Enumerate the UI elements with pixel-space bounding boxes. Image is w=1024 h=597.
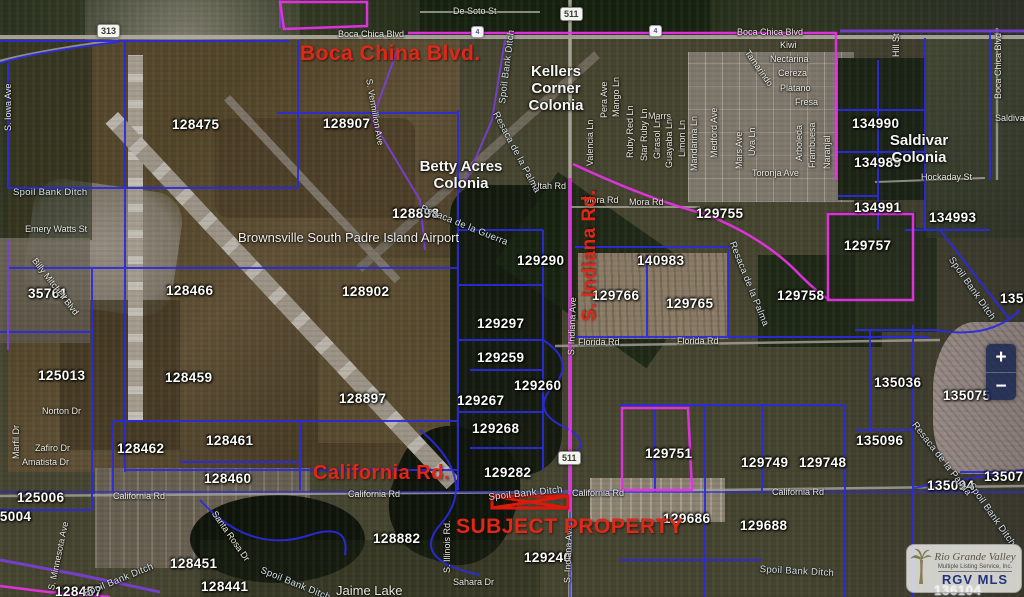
parcel-label: 140983 <box>637 253 684 268</box>
street-label: Emery Watts St <box>25 224 87 234</box>
parcel-label: 128441 <box>201 579 248 594</box>
street-label: Naranjal <box>822 135 832 169</box>
parcel-label: 134991 <box>854 200 901 215</box>
parcel-label: 129260 <box>514 378 561 393</box>
colonia-label: Betty Acres Colonia <box>420 159 503 193</box>
rgv-mls-logo: Rio Grande Valley Multiple Listing Servi… <box>906 544 1022 593</box>
road-highlight-label: Boca China Blvd. <box>300 42 481 66</box>
waterway-label: Spoil Bank Ditch <box>497 29 517 104</box>
parcel-label: 129758 <box>777 288 824 303</box>
parcel-label: 128459 <box>165 370 212 385</box>
colonia-label: Kellers Corner Colonia <box>529 64 584 114</box>
parcel-label: 129749 <box>741 455 788 470</box>
street-label: S. Illinois Rd. <box>442 520 452 573</box>
street-label: Ruby Red Ln <box>625 105 635 158</box>
parcel-label: 125013 <box>38 368 85 383</box>
street-label: Hockaday St <box>921 172 972 182</box>
parcel-label: 129751 <box>645 446 692 461</box>
street-label: Jaime Lake <box>336 583 402 597</box>
waterway-label: Resaca de la Palma <box>727 240 771 328</box>
road-highlight-label: California Rd. <box>313 462 450 485</box>
parcel-label: 129755 <box>696 206 743 221</box>
road-highlight-label: S. Indiana Rd. <box>579 189 601 322</box>
zoom-in-button[interactable]: + <box>986 344 1016 372</box>
street-label: Saldivar <box>995 113 1024 123</box>
map-zoom-control: + − <box>986 344 1016 400</box>
parcel-label: 128475 <box>172 117 219 132</box>
parcel-label: 128897 <box>339 391 386 406</box>
street-label: Santa Rosa Dr <box>210 509 252 563</box>
street-label: Hill St <box>891 33 901 57</box>
map-label-layer: 1284751289071288981284661289023576112501… <box>0 0 1024 597</box>
street-label: Zafiro Dr <box>35 443 70 453</box>
street-label: Boca Chica Blvd <box>338 29 404 39</box>
street-label: Toronja Ave <box>752 168 799 178</box>
rgv-mls-logo-text: Rio Grande Valley Multiple Listing Servi… <box>933 552 1017 586</box>
parcel-label: 128882 <box>373 531 420 546</box>
map-canvas[interactable]: 1284751289071288981284661289023576112501… <box>0 0 1024 597</box>
parcel-label: 129290 <box>517 253 564 268</box>
parcel-label: 128902 <box>342 284 389 299</box>
waterway-label: Spoil Bank Ditch <box>946 255 998 322</box>
parcel-label: 135073 <box>984 469 1024 484</box>
parcel-label: 128461 <box>206 433 253 448</box>
parcel-label: 129282 <box>484 465 531 480</box>
parcel-label: 129297 <box>477 316 524 331</box>
logo-name: Rio Grande Valley <box>934 552 1015 563</box>
street-label: De Soto St <box>453 6 497 16</box>
parcel-label: 135075 <box>943 388 990 403</box>
poi-label: Brownsville South Padre Island Airport <box>238 230 459 245</box>
parcel-label: 129748 <box>799 455 846 470</box>
colonia-label: Saldivar Colonia <box>890 133 948 167</box>
street-label: California Rd <box>572 488 624 498</box>
street-label: Star Ruby Ln <box>639 108 649 161</box>
parcel-label: 128451 <box>170 556 217 571</box>
street-label: Boca Chica Blvd <box>737 27 803 37</box>
street-label: Girasol Ln <box>652 118 662 159</box>
parcel-label: 129267 <box>457 393 504 408</box>
street-label: Guayaba Ln <box>664 119 674 168</box>
street-label: California Rd <box>113 491 165 501</box>
waterway-label: Spoil Bank Ditch <box>966 481 1018 548</box>
route-shield: 313 <box>97 24 120 38</box>
parcel-label: 128466 <box>166 283 213 298</box>
street-label: S. Indiana Ave <box>566 297 578 355</box>
parcel-label: 1350 <box>1000 291 1024 306</box>
street-label: Amatista Dr <box>22 457 69 467</box>
street-label: Marfil Dr <box>11 425 21 459</box>
parcel-label: 135096 <box>856 433 903 448</box>
waterway-label: Spoil Bank Ditch <box>759 564 834 579</box>
route-shield: 511 <box>558 451 581 465</box>
zoom-out-button[interactable]: − <box>986 373 1016 401</box>
waterway-label: Spoil Bank Ditch <box>259 565 332 597</box>
parcel-label: 129688 <box>740 518 787 533</box>
waterway-label: Spoil Bank Ditch <box>82 561 155 597</box>
parcel-label: 129259 <box>477 350 524 365</box>
street-label: Boca Chica Blvd <box>993 33 1003 99</box>
street-label: S. Minnesota Ave <box>46 521 70 591</box>
parcel-label: 134990 <box>852 116 899 131</box>
logo-subtitle: Multiple Listing Service, Inc. <box>938 564 1012 572</box>
street-label: Frambuesa <box>807 122 817 168</box>
street-label: California Rd <box>348 489 400 499</box>
route-badge: 4 <box>471 26 484 38</box>
palm-tree-icon <box>909 546 933 591</box>
street-label: Limon Ln <box>677 120 687 157</box>
street-label: Uva Ln <box>747 127 757 156</box>
street-label: Florida Rd <box>677 336 719 346</box>
street-label: Platano <box>780 83 811 93</box>
street-label: S. Vermillion Ave <box>364 78 386 146</box>
street-label: S. Iowa Ave <box>3 84 13 131</box>
parcel-label: 135036 <box>874 375 921 390</box>
parcel-label: 128907 <box>323 116 370 131</box>
street-label: Cereza <box>778 68 807 78</box>
waterway-label: Spoil Bank Ditch <box>488 484 563 503</box>
street-label: Mango Ln <box>611 77 621 117</box>
street-label: Arboleda <box>794 125 804 161</box>
parcel-label: 128460 <box>204 471 251 486</box>
parcel-label: 128462 <box>117 441 164 456</box>
street-label: California Rd <box>772 487 824 497</box>
street-label: Kiwi <box>780 40 797 50</box>
street-label: Valencia Ln <box>585 120 595 166</box>
street-label: Fresa <box>795 97 818 107</box>
street-label: Pera Ave <box>599 82 609 118</box>
street-label: Mora Rd <box>629 197 664 207</box>
parcel-label: 125004 <box>0 509 31 524</box>
parcel-label: 129268 <box>472 421 519 436</box>
street-label: Medford Ave <box>709 108 719 158</box>
street-label: Nectarina <box>770 54 809 64</box>
parcel-label: 125006 <box>17 490 64 505</box>
road-highlight-label: SUBJECT PROPERTY <box>456 515 683 539</box>
street-label: Mars Ave <box>734 132 744 169</box>
logo-abbr: RGV MLS <box>942 573 1008 586</box>
waterway-label: Spoil Bank Ditch <box>13 187 88 198</box>
street-label: Florida Rd <box>578 337 620 347</box>
route-shield: 511 <box>560 7 583 21</box>
route-badge: 4 <box>649 25 662 37</box>
parcel-label: 134993 <box>929 210 976 225</box>
street-label: Mandarina Ln <box>689 116 699 171</box>
parcel-label: 129757 <box>844 238 891 253</box>
street-label: Sahara Dr <box>453 577 494 587</box>
parcel-label: 129765 <box>666 296 713 311</box>
street-label: Norton Dr <box>42 406 81 416</box>
